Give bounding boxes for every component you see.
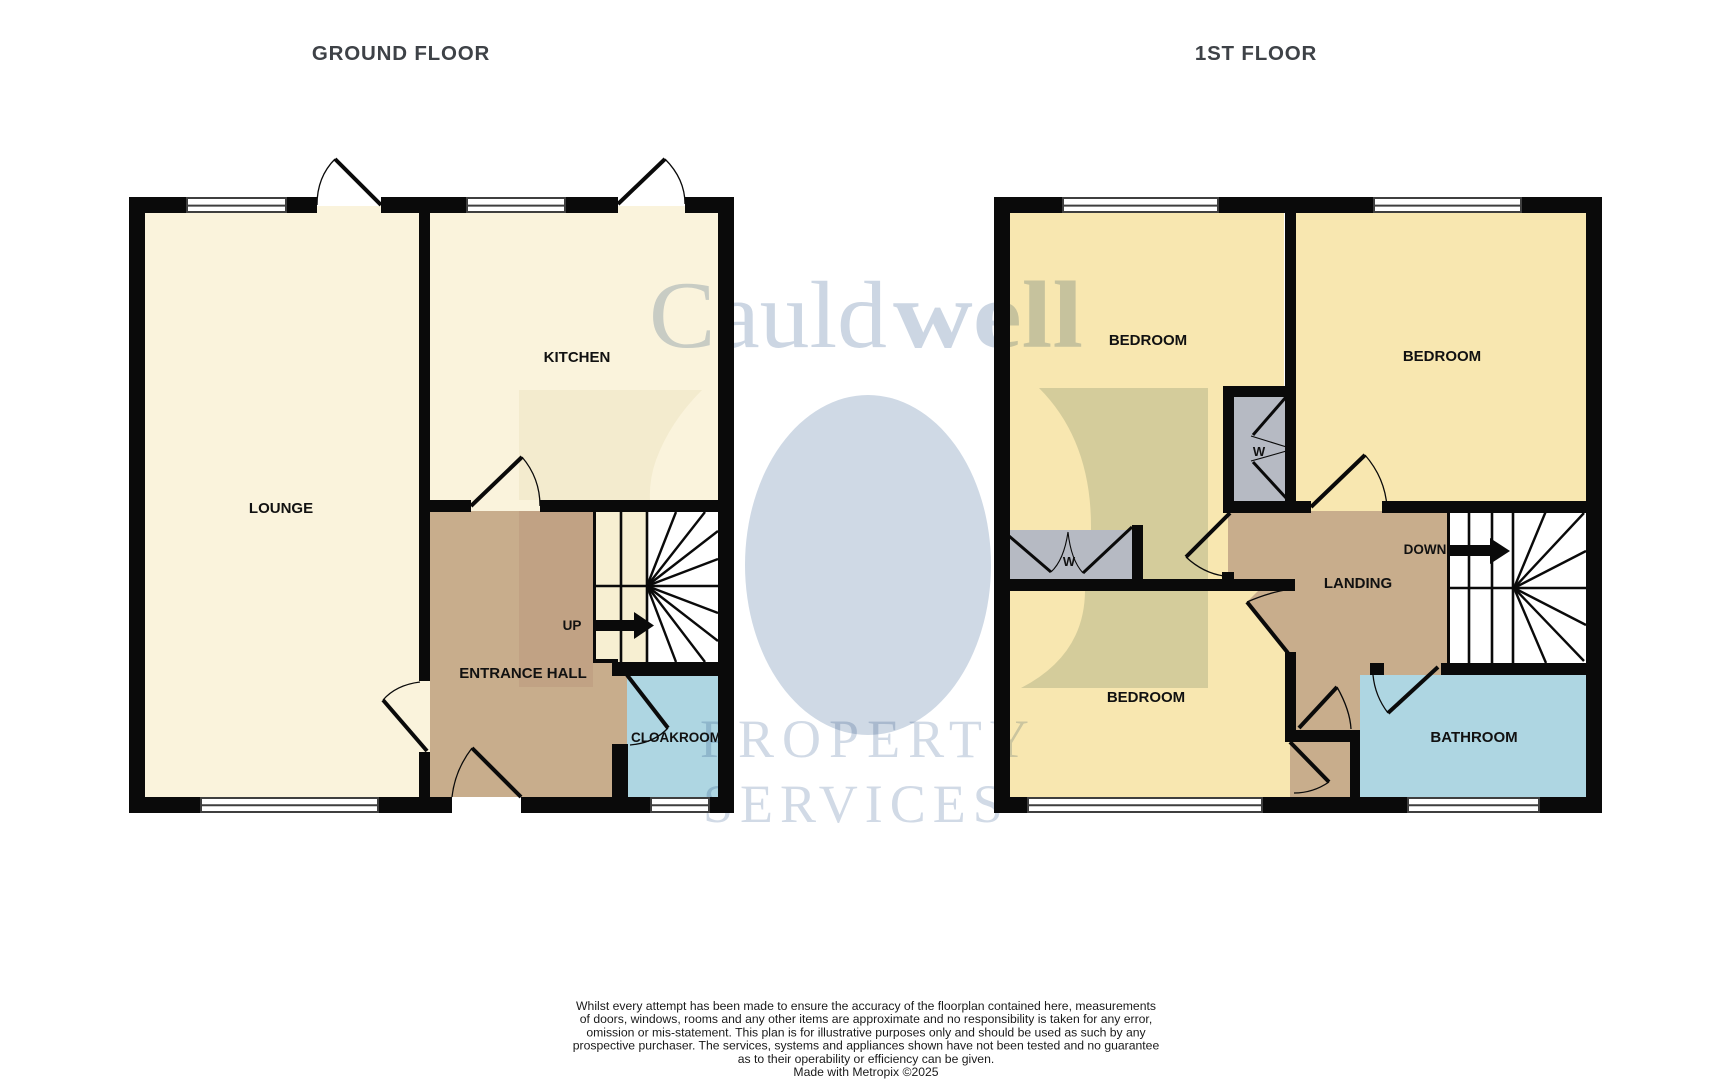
svg-text:SERVICES: SERVICES xyxy=(703,774,1010,834)
svg-text:UP: UP xyxy=(563,618,582,633)
svg-text:BEDROOM: BEDROOM xyxy=(1403,348,1481,365)
svg-text:prospective purchaser. The ser: prospective purchaser. The services, sys… xyxy=(573,1039,1160,1053)
svg-text:Made with Metropix ©2025: Made with Metropix ©2025 xyxy=(793,1065,938,1079)
svg-text:Cauld: Cauld xyxy=(649,262,887,368)
svg-text:BEDROOM: BEDROOM xyxy=(1109,332,1187,349)
svg-text:Whilst every attempt has been: Whilst every attempt has been made to en… xyxy=(576,999,1156,1013)
svg-text:1ST FLOOR: 1ST FLOOR xyxy=(1195,42,1317,65)
svg-text:omission or mis-statement. Thi: omission or mis-statement. This plan is … xyxy=(586,1025,1146,1039)
svg-text:CLOAKROOM: CLOAKROOM xyxy=(631,730,721,745)
svg-text:KITCHEN: KITCHEN xyxy=(544,349,611,366)
svg-text:ENTRANCE HALL: ENTRANCE HALL xyxy=(459,665,587,682)
svg-text:LOUNGE: LOUNGE xyxy=(249,500,313,517)
svg-text:PROPERTY: PROPERTY xyxy=(700,709,1037,769)
svg-text:as to their operability or eff: as to their operability or efficiency ca… xyxy=(738,1052,995,1066)
svg-text:W: W xyxy=(1063,554,1076,569)
svg-text:BATHROOM: BATHROOM xyxy=(1430,729,1517,746)
svg-text:well: well xyxy=(893,262,1083,368)
svg-text:of doors, windows, rooms and a: of doors, windows, rooms and any other i… xyxy=(580,1012,1152,1026)
svg-text:LANDING: LANDING xyxy=(1324,575,1392,592)
svg-text:GROUND FLOOR: GROUND FLOOR xyxy=(312,42,490,65)
svg-text:W: W xyxy=(1253,444,1266,459)
svg-text:DOWN: DOWN xyxy=(1404,542,1447,557)
svg-text:BEDROOM: BEDROOM xyxy=(1107,689,1185,706)
